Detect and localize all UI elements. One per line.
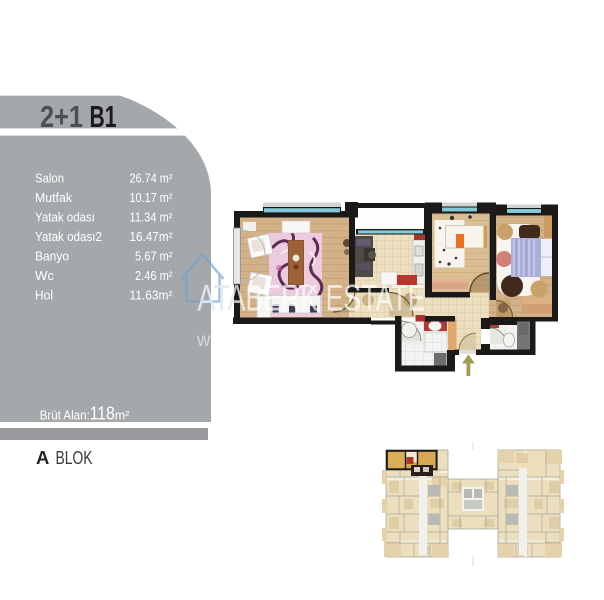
svg-text:www.ataberkestate.com: www.ataberkestate.com — [196, 330, 393, 351]
svg-text:Mutfak: Mutfak — [35, 190, 72, 205]
svg-text:A: A — [36, 447, 49, 468]
svg-text:BLOK: BLOK — [56, 447, 93, 468]
svg-text:26.74 m²: 26.74 m² — [130, 171, 174, 186]
svg-text:2.46 m²: 2.46 m² — [135, 268, 173, 283]
svg-text:Hol: Hol — [35, 288, 53, 303]
svg-text:11.34 m²: 11.34 m² — [130, 210, 174, 225]
svg-text:5.67 m²: 5.67 m² — [135, 249, 173, 264]
svg-text:Banyo: Banyo — [35, 249, 69, 264]
svg-text:11.63m²: 11.63m² — [130, 288, 174, 303]
svg-text:ATABERK ESTATE: ATABERK ESTATE — [198, 277, 426, 319]
svg-text:Yatak odası2: Yatak odası2 — [35, 229, 102, 244]
svg-text:16.47m²: 16.47m² — [130, 229, 174, 244]
svg-text:10.17 m²: 10.17 m² — [130, 190, 174, 205]
svg-text:B1: B1 — [90, 99, 117, 134]
svg-text:Wc: Wc — [35, 268, 54, 283]
svg-text:2+1: 2+1 — [40, 99, 83, 134]
svg-text:Salon: Salon — [35, 171, 64, 186]
svg-text:Yatak odası: Yatak odası — [35, 210, 95, 225]
